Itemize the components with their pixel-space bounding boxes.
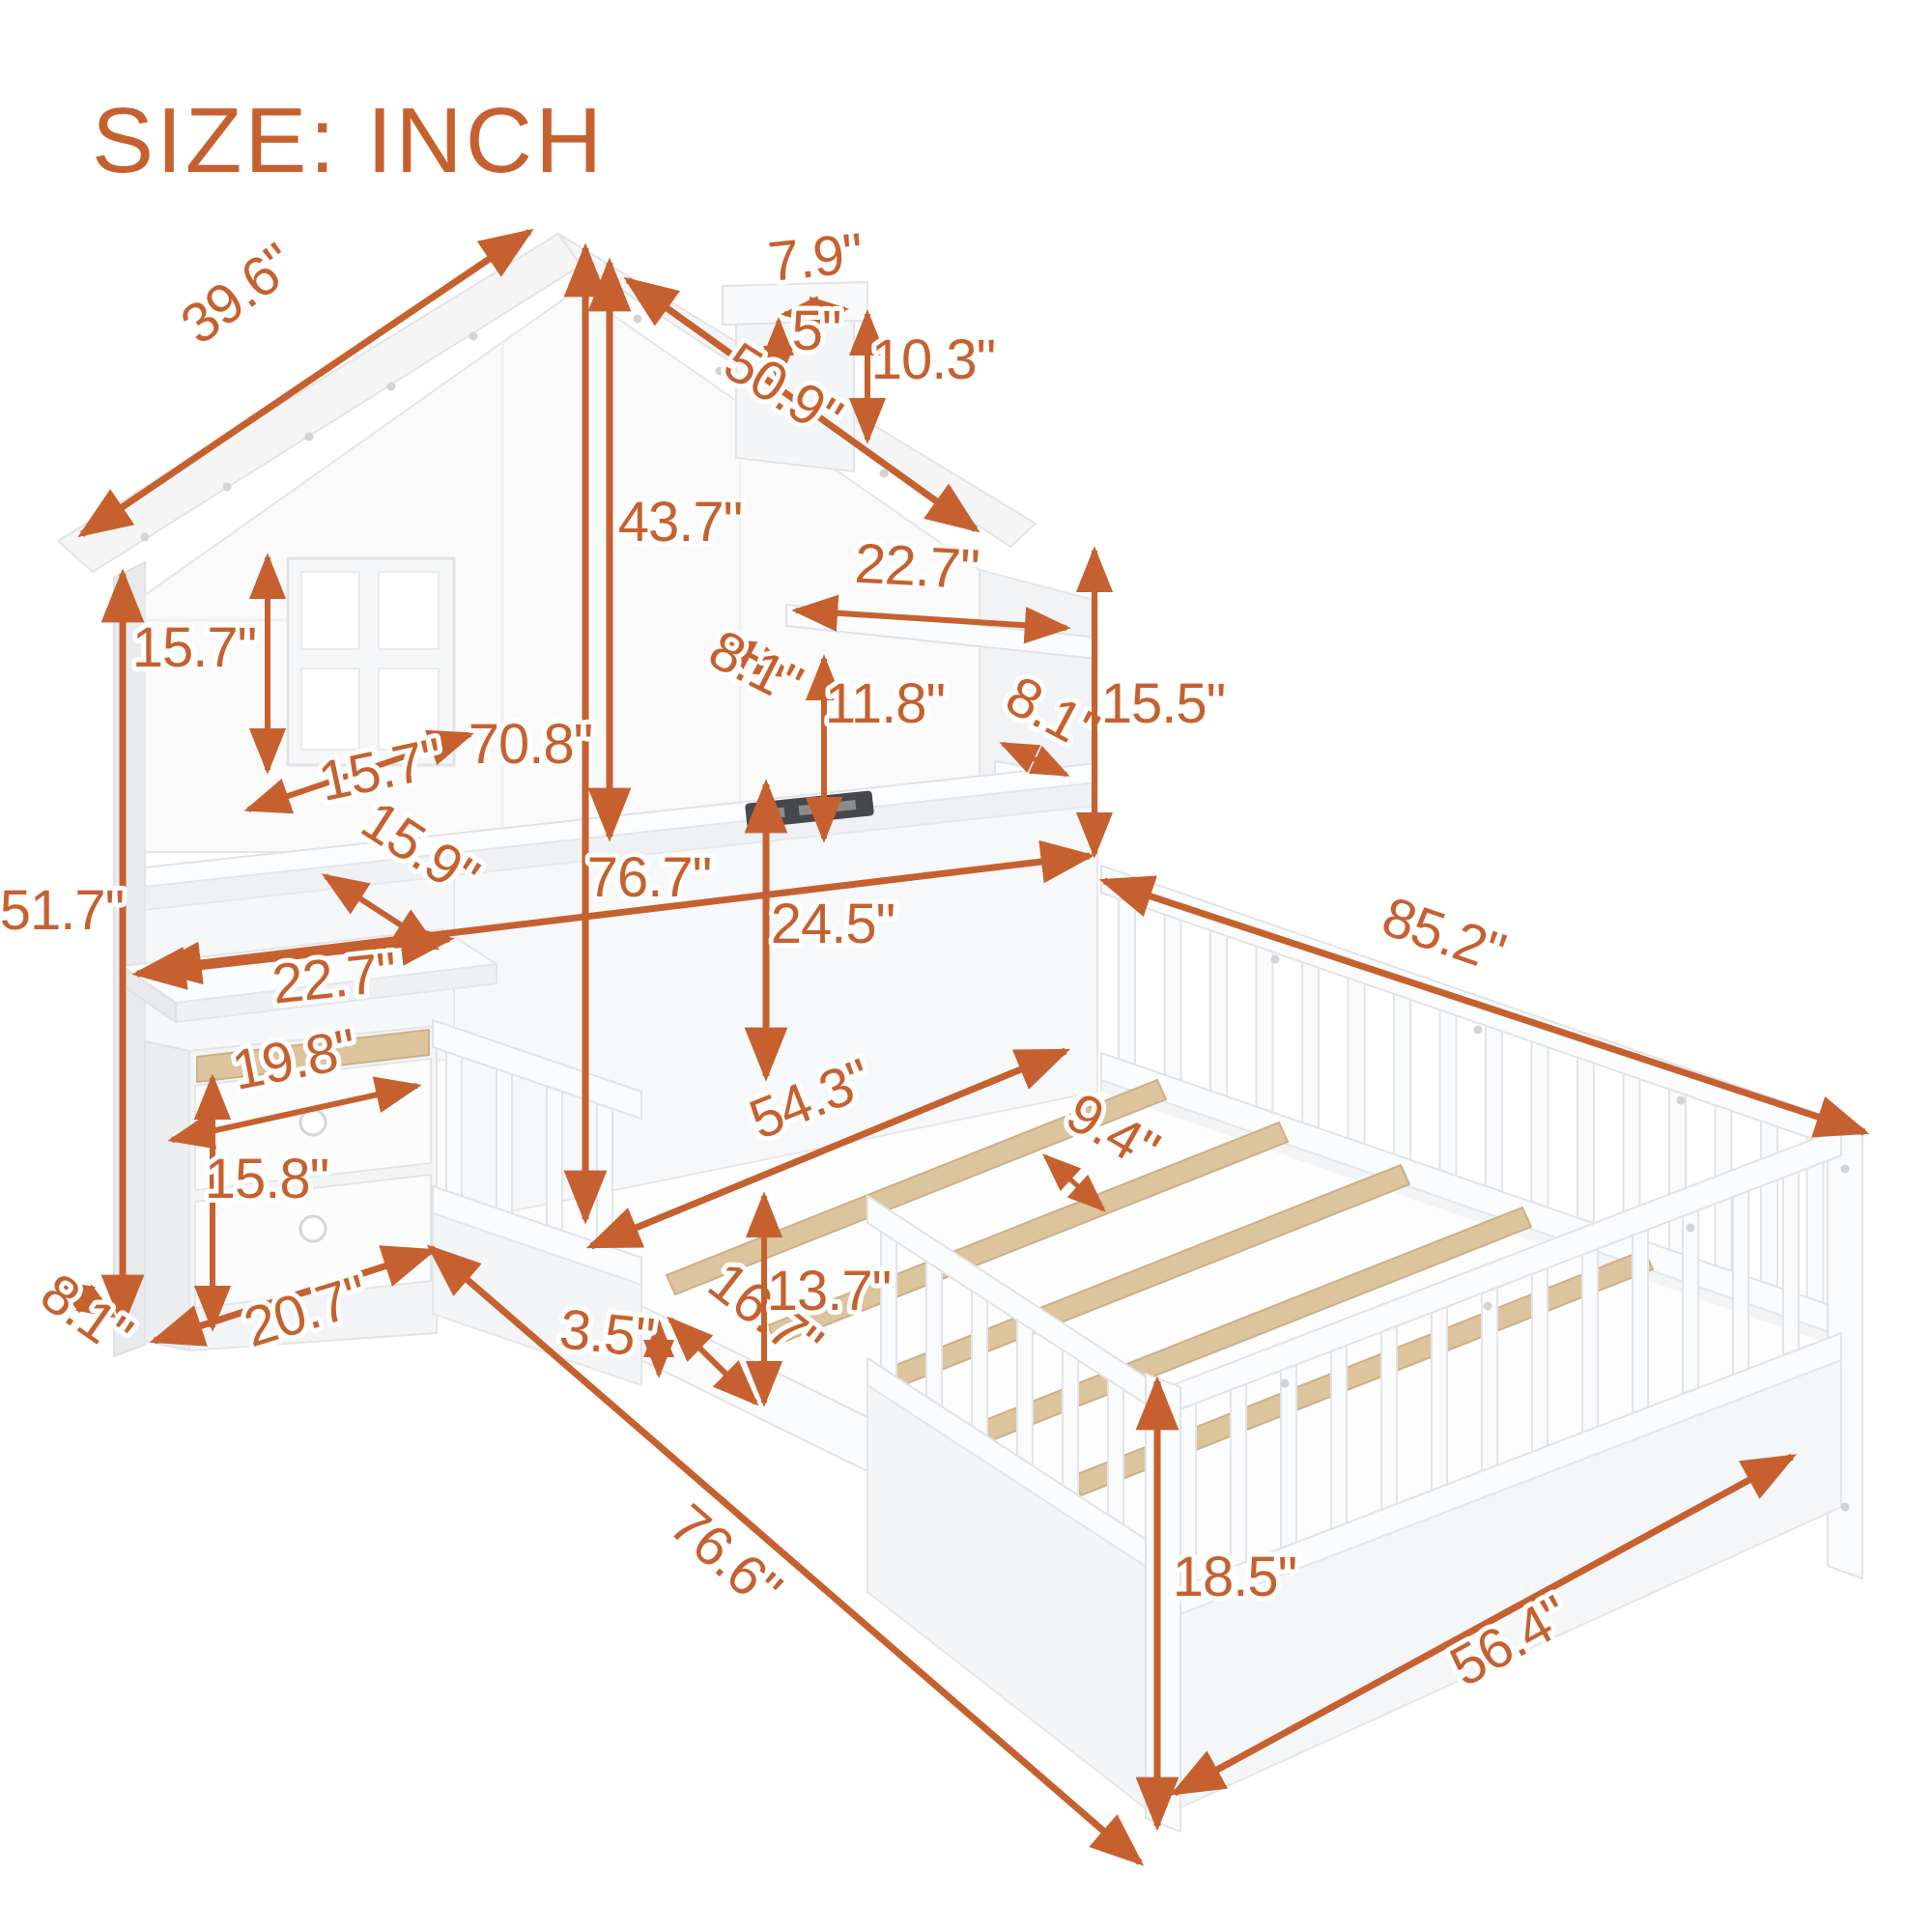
dimension-label-peak-to-shelf-height: 43.7" (618, 491, 742, 554)
rail-slat (1432, 1307, 1447, 1491)
dimension-bottom-rail-height: 3.5" (556, 1297, 659, 1375)
rail-slat (1633, 1230, 1648, 1413)
cabinet-side (145, 1041, 189, 1350)
rail-slat (926, 1262, 942, 1406)
dimension-label-chimney-height: 10.3" (871, 328, 995, 391)
drawer-knob (300, 1216, 326, 1241)
rail-slat (1231, 1384, 1246, 1568)
screw-dot (1271, 955, 1280, 964)
window-pane (301, 668, 359, 750)
page-title: SIZE: INCH (92, 89, 605, 192)
screw-dot (1677, 1096, 1686, 1105)
screw-dot (1474, 1026, 1483, 1035)
rail-slat (1349, 978, 1365, 1144)
dimension-label-headboard-total-width: 76.7" (587, 846, 711, 909)
rail-slat (597, 1103, 612, 1247)
rail-slat (1165, 915, 1181, 1081)
rail-slat (1119, 898, 1135, 1065)
window-pane (379, 572, 439, 649)
rail-slat (1302, 962, 1319, 1128)
rail-slat (547, 1086, 562, 1230)
rail-slat (1381, 1326, 1397, 1510)
rail-slat (1532, 1268, 1548, 1452)
dimension-label-shelf-to-slat-height: 24.5" (771, 893, 895, 955)
rail-slat (1257, 947, 1273, 1113)
bed-dimension-diagram: 39.6"7.9"5"10.3"50.9"43.7"15.7"15.7"70.8… (0, 0, 1932, 1932)
dimension-side-shelf-height: 15.5" (1094, 551, 1225, 854)
rail-slat (1532, 1041, 1548, 1207)
dimension-label-chimney-cap-height: 5" (792, 299, 841, 362)
screw-dot (305, 433, 314, 441)
screw-dot (469, 332, 478, 341)
dimension-label-chimney-top-width: 7.9" (765, 221, 865, 294)
rail-slat (1683, 1210, 1698, 1394)
rail-slat (1210, 930, 1227, 1096)
rail-slat (1017, 1321, 1033, 1465)
rail-slat (1486, 1026, 1502, 1192)
rail-slat (1733, 1191, 1748, 1375)
screw-dot (141, 533, 150, 542)
dimension-label-drawer-stack-height: 15.8" (205, 1148, 328, 1210)
rail-slat (972, 1291, 987, 1435)
screw-dot (1281, 1379, 1290, 1388)
rail-slat (1577, 1058, 1594, 1224)
screw-dot (1484, 1302, 1492, 1311)
rail-slat (1761, 1121, 1777, 1287)
screw-dot (634, 315, 642, 324)
dimension-label-roof-left-length: 39.6" (169, 232, 306, 356)
drawer-knob (300, 1110, 326, 1135)
rail-slat (1482, 1288, 1497, 1471)
rail-slat (1783, 1172, 1799, 1355)
rail-slat (446, 1052, 462, 1196)
rail-slat (1331, 1346, 1347, 1529)
rail-slat (497, 1069, 512, 1213)
window-pane (301, 572, 359, 649)
dimension-headboard-height: 51.7" (0, 574, 124, 1323)
dimension-label-frame-floor-length: 76.6" (658, 1492, 793, 1621)
dimension-label-window-height: 15.7" (132, 616, 256, 679)
screw-dot (223, 483, 232, 492)
rail-slat (1394, 994, 1410, 1160)
rail-slat (1440, 1009, 1457, 1176)
diagram-page: 39.6"7.9"5"10.3"50.9"43.7"15.7"15.7"70.8… (0, 0, 1932, 1932)
screw-dot (387, 383, 396, 391)
rail-slat (1281, 1365, 1296, 1548)
rail-slat (1063, 1350, 1078, 1494)
dimension-label-shelf-gap-height: 11.8" (825, 672, 945, 735)
screw-dot (1841, 1503, 1850, 1512)
dimension-chimney-height: 10.3" (867, 314, 995, 440)
dimension-label-headboard-height: 51.7" (0, 879, 124, 942)
dimension-label-bottom-rail-height: 3.5" (556, 1297, 656, 1370)
dimension-label-footboard-height: 18.5" (1173, 1546, 1296, 1608)
screw-dot (1841, 1165, 1850, 1174)
screw-dot (1687, 1224, 1695, 1233)
dimension-label-top-shelf-width: 22.7" (853, 532, 980, 602)
screw-dot (880, 469, 889, 478)
dimension-label-guardrail-height: 13.7" (767, 1260, 891, 1322)
headboard-left-side-panel (114, 562, 145, 1356)
dimension-label-side-shelf-height: 15.5" (1101, 672, 1225, 735)
rail-slat (1108, 1379, 1123, 1524)
dimension-label-peak-to-desk-height: 70.8" (469, 713, 592, 776)
rail-slat (1582, 1249, 1598, 1433)
